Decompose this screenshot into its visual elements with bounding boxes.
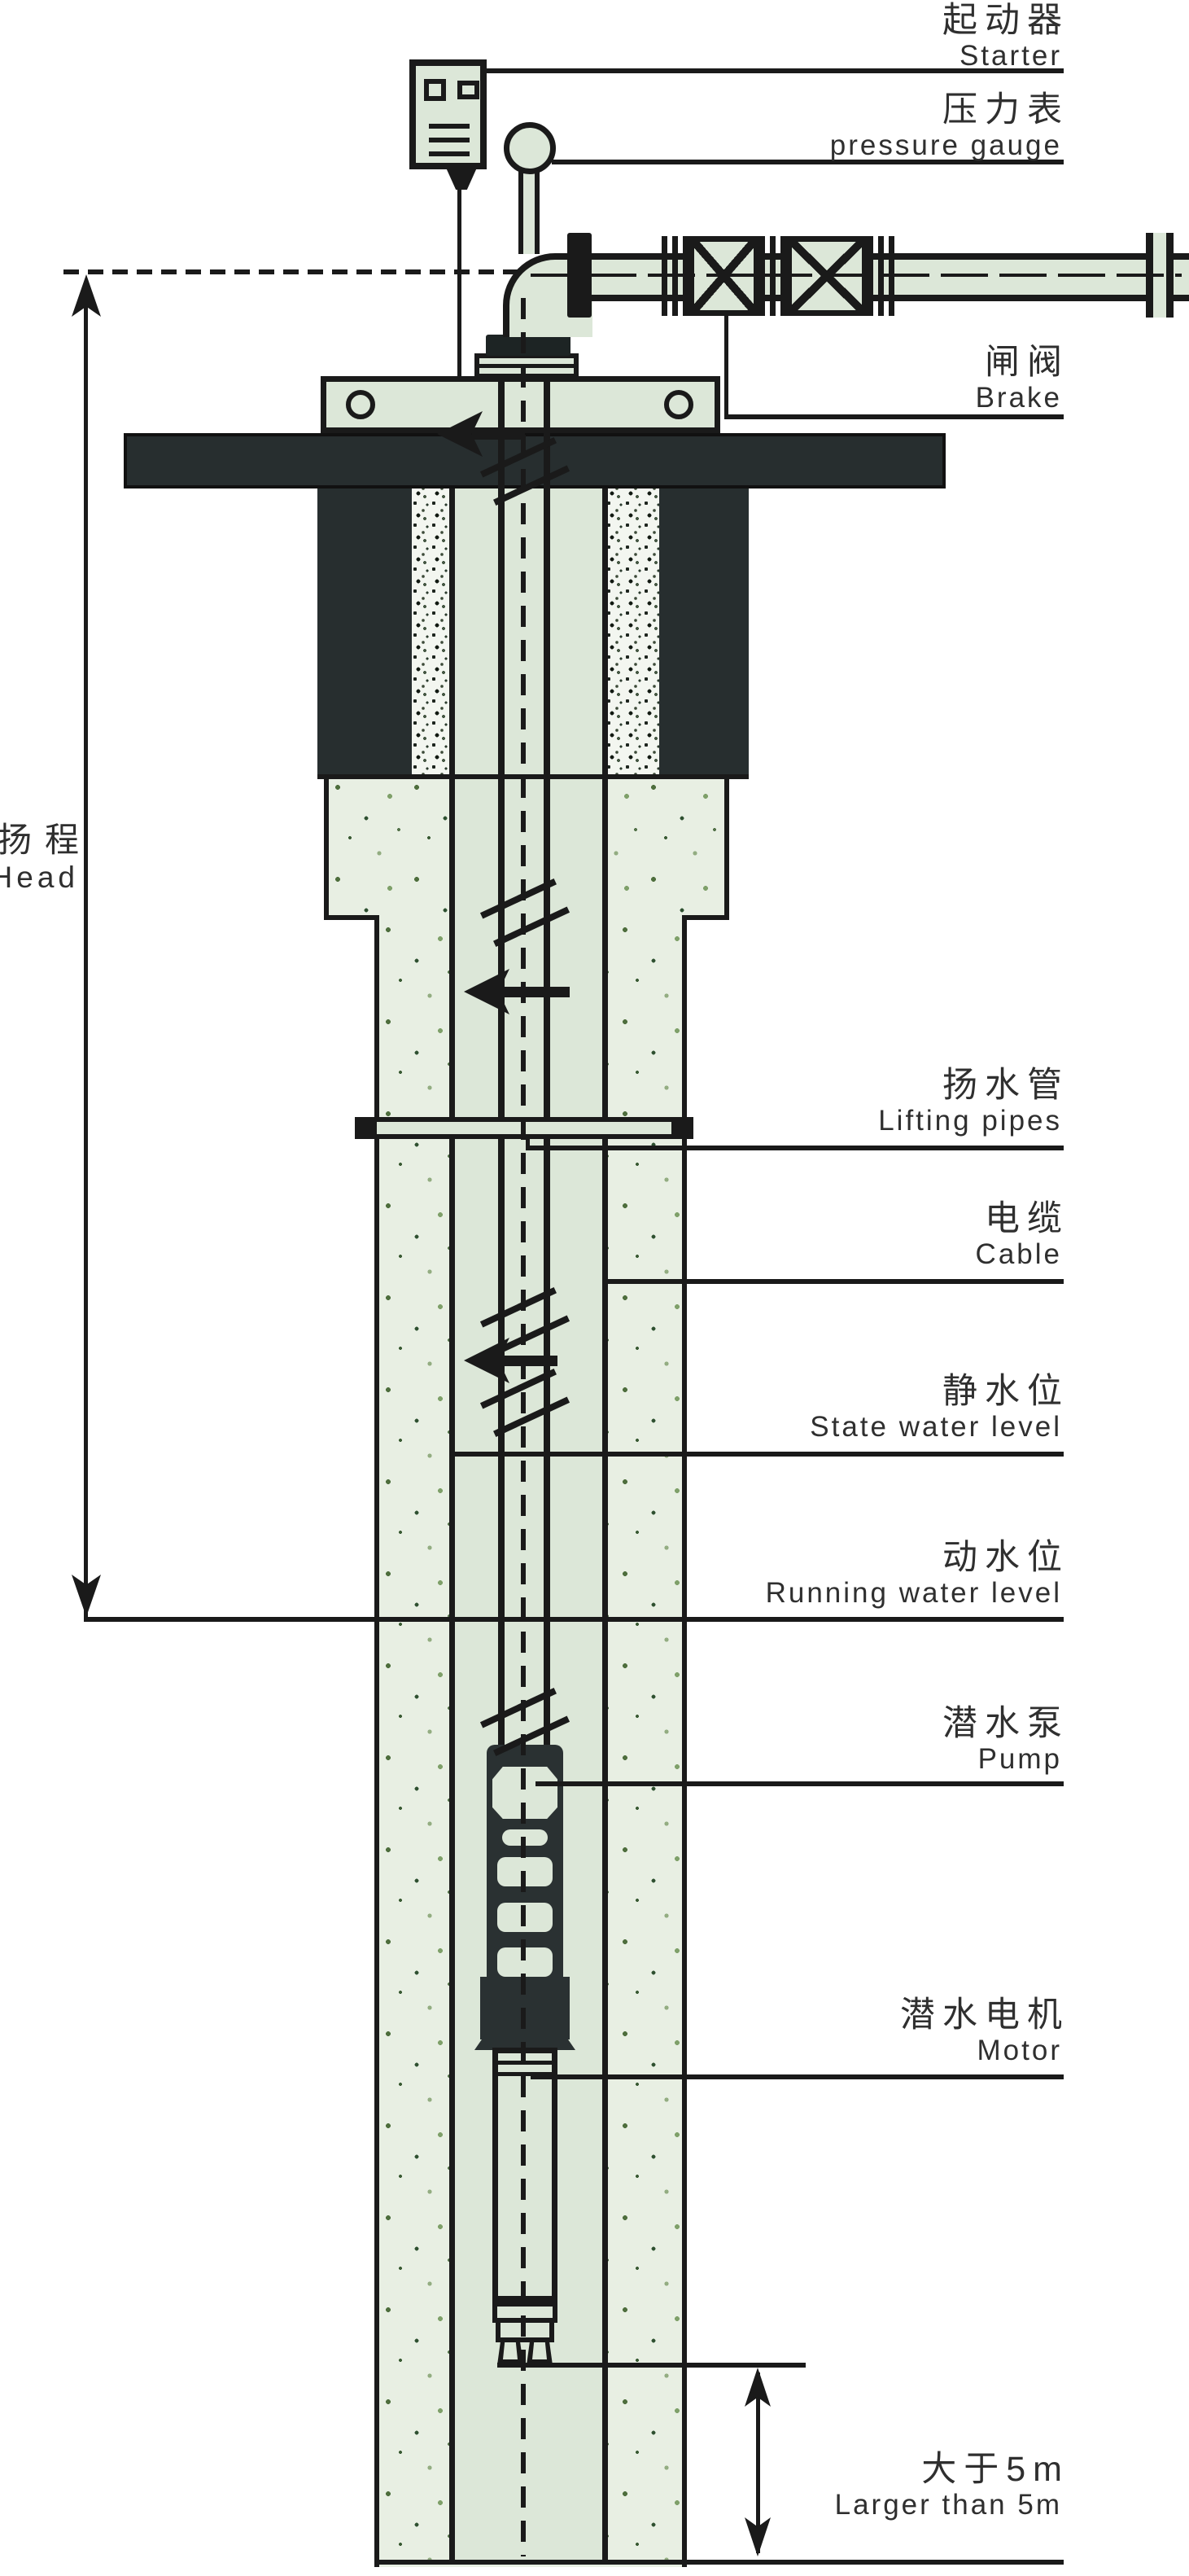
starter-vent-line-2 xyxy=(429,138,470,142)
head-dimension-line xyxy=(84,283,88,1619)
diagram-canvas: 起动器 Starter 压力表 pressure gauge 闸阀 Brake … xyxy=(0,0,1189,2576)
plate-bolt-hole-right xyxy=(664,390,693,419)
label-lifting-pipes: 扬水管 Lifting pipes xyxy=(878,1067,1062,1138)
starter-indicator-left xyxy=(424,79,446,101)
label-pressure-gauge-en: pressure gauge xyxy=(830,129,1062,163)
label-pump-zh: 潜水泵 xyxy=(942,1705,1069,1742)
label-motor: 潜水电机 Motor xyxy=(900,1996,1062,2068)
label-head-zh: 扬程 xyxy=(0,821,92,860)
leader-lifting-pipes xyxy=(526,1146,1064,1150)
label-cable-en: Cable xyxy=(976,1238,1062,1272)
label-running-water-level-zh: 动水位 xyxy=(766,1539,1069,1576)
leader-motor xyxy=(531,2074,1064,2079)
riser-pipe-wall-left xyxy=(498,376,505,1748)
casing-line-left xyxy=(449,433,455,2565)
label-pump-en: Pump xyxy=(942,1742,1062,1776)
label-starter: 起动器 Starter xyxy=(942,2,1062,73)
label-cable-zh: 电缆 xyxy=(976,1200,1069,1238)
leader-cable xyxy=(605,1279,1064,1284)
static-water-level-line xyxy=(452,1452,1064,1457)
starter-gland xyxy=(446,168,477,190)
wellhead-flange-line xyxy=(479,364,574,368)
well-centerline xyxy=(521,298,526,2556)
motor-foot-left-inner xyxy=(503,2342,518,2359)
foundation-bottom-edge xyxy=(317,774,749,779)
head-reference-dashed-line xyxy=(63,269,524,274)
motor-foot-right-inner xyxy=(532,2342,547,2359)
label-lifting-pipes-zh: 扬水管 xyxy=(878,1067,1069,1104)
label-pump: 潜水泵 Pump xyxy=(942,1705,1062,1776)
label-running-water-level-en: Running water level xyxy=(766,1576,1062,1610)
clamp-end-right xyxy=(671,1117,693,1139)
well-step-right xyxy=(682,915,729,920)
label-static-water-level-zh: 静水位 xyxy=(810,1373,1069,1410)
label-static-water-level: 静水位 State water level xyxy=(810,1373,1062,1444)
wellhead-flange-upper xyxy=(486,335,570,356)
well-bottom-line xyxy=(374,2560,1064,2565)
label-larger-than-5m: 大于5m Larger than 5m xyxy=(835,2451,1062,2522)
label-pressure-gauge: 压力表 pressure gauge xyxy=(830,91,1062,163)
foundation-column-right xyxy=(659,488,749,779)
casing-line-right xyxy=(602,433,608,2565)
label-cable: 电缆 Cable xyxy=(976,1200,1062,1272)
well-step-left xyxy=(324,915,379,920)
label-running-water-level: 动水位 Running water level xyxy=(766,1539,1062,1610)
pressure-gauge-stem xyxy=(518,169,540,254)
label-brake-en: Brake xyxy=(976,381,1062,415)
starter-indicator-right xyxy=(457,81,479,99)
label-starter-en: Starter xyxy=(942,39,1062,73)
pressure-gauge-dial xyxy=(504,122,556,174)
label-larger-than-5m-en: Larger than 5m xyxy=(835,2488,1062,2522)
motor-bottom-line xyxy=(497,2363,806,2368)
label-brake: 闸阀 Brake xyxy=(976,344,1062,415)
starter-cable xyxy=(457,188,461,376)
label-static-water-level-en: State water level xyxy=(810,1410,1062,1444)
leader-brake-vertical xyxy=(724,316,728,418)
label-lifting-pipes-en: Lifting pipes xyxy=(878,1104,1062,1138)
starter-vent-line-3 xyxy=(429,151,470,156)
label-starter-zh: 起动器 xyxy=(942,2,1069,39)
clamp-end-left xyxy=(355,1117,377,1139)
label-brake-zh: 闸阀 xyxy=(976,344,1069,381)
label-motor-zh: 潜水电机 xyxy=(900,1996,1069,2034)
label-head-en: Head xyxy=(0,860,79,896)
running-water-level-line xyxy=(84,1617,1064,1622)
label-head: 扬程 Head xyxy=(0,821,79,896)
label-larger-than-5m-zh: 大于5m xyxy=(835,2451,1069,2488)
plate-bolt-hole-left xyxy=(346,390,375,419)
riser-pipe-wall-right xyxy=(544,376,550,1748)
foundation-column-left xyxy=(317,488,412,779)
label-motor-en: Motor xyxy=(900,2034,1062,2068)
label-pressure-gauge-zh: 压力表 xyxy=(830,91,1069,129)
leader-pump xyxy=(535,1781,1064,1786)
starter-vent-line-1 xyxy=(429,124,470,129)
pipe-centerline xyxy=(531,274,1182,277)
